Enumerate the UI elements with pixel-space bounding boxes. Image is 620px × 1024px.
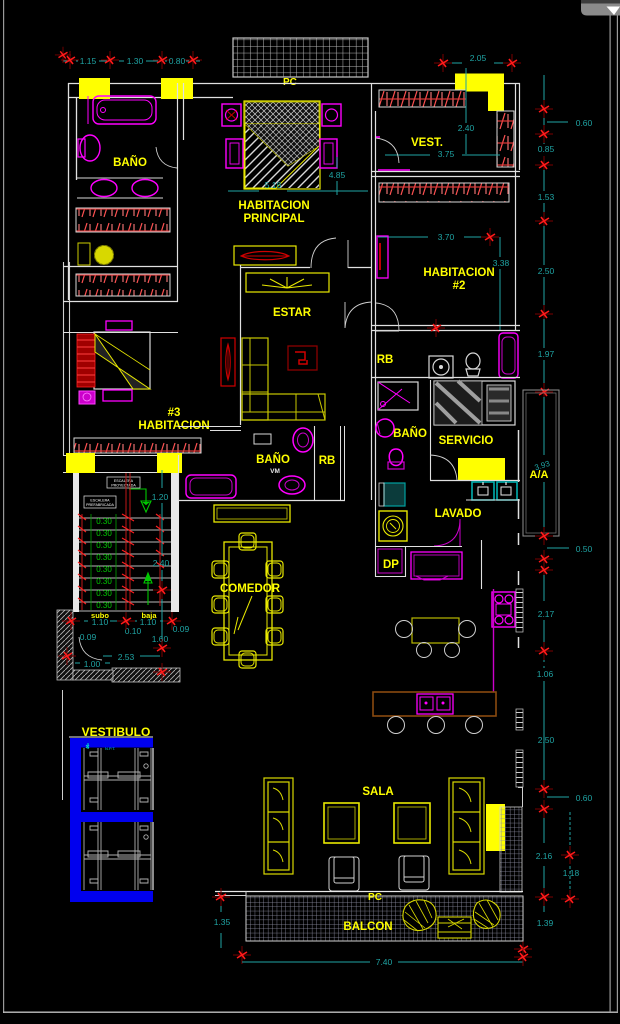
svg-text:RB: RB bbox=[377, 354, 394, 366]
svg-text:2.40: 2.40 bbox=[153, 558, 170, 568]
svg-text:2.40: 2.40 bbox=[458, 123, 475, 133]
svg-text:0.30: 0.30 bbox=[96, 601, 112, 610]
svg-text:1.35: 1.35 bbox=[214, 917, 231, 927]
svg-text:COMEDOR: COMEDOR bbox=[220, 583, 281, 595]
svg-text:LAVADO: LAVADO bbox=[435, 508, 482, 520]
svg-text:3.38: 3.38 bbox=[493, 258, 510, 268]
svg-text:RB: RB bbox=[319, 455, 336, 467]
svg-text:0.80: 0.80 bbox=[169, 56, 186, 66]
svg-text:1.60: 1.60 bbox=[152, 634, 169, 644]
svg-text:2.50: 2.50 bbox=[538, 735, 555, 745]
svg-text:0.09: 0.09 bbox=[80, 632, 97, 642]
svg-text:PREFABRICADA: PREFABRICADA bbox=[86, 503, 114, 507]
svg-text:0.50: 0.50 bbox=[576, 544, 593, 554]
svg-text:ESTAR: ESTAR bbox=[273, 307, 312, 319]
svg-text:0.10: 0.10 bbox=[125, 626, 142, 636]
svg-text:BAÑO: BAÑO bbox=[256, 453, 290, 466]
svg-text:2.53: 2.53 bbox=[118, 652, 135, 662]
svg-text:1.10: 1.10 bbox=[92, 617, 109, 627]
svg-text:1.10: 1.10 bbox=[140, 617, 157, 627]
svg-text:PC: PC bbox=[368, 892, 382, 903]
svg-text:5.18: 5.18 bbox=[265, 180, 282, 190]
svg-text:#3: #3 bbox=[168, 407, 181, 419]
svg-text:0.30: 0.30 bbox=[96, 589, 112, 598]
svg-text:BAÑO: BAÑO bbox=[393, 427, 427, 440]
svg-text:1.18: 1.18 bbox=[563, 868, 580, 878]
svg-text:1.06: 1.06 bbox=[537, 669, 554, 679]
svg-text:ESCALERA: ESCALERA bbox=[90, 499, 110, 503]
svg-text:BAÑO: BAÑO bbox=[113, 156, 147, 169]
svg-text:SERVICIO: SERVICIO bbox=[439, 435, 494, 447]
svg-text:0.30: 0.30 bbox=[96, 541, 112, 550]
svg-text:2.17: 2.17 bbox=[538, 609, 555, 619]
svg-text:PROYECTADA: PROYECTADA bbox=[111, 484, 136, 488]
svg-text:1.97: 1.97 bbox=[538, 349, 555, 359]
svg-text:2.16: 2.16 bbox=[536, 851, 553, 861]
svg-text:PC: PC bbox=[283, 77, 297, 88]
svg-text:0.85: 0.85 bbox=[538, 144, 555, 154]
svg-text:#2: #2 bbox=[453, 280, 466, 292]
svg-text:0.09: 0.09 bbox=[173, 624, 190, 634]
svg-text:0.30: 0.30 bbox=[96, 577, 112, 586]
svg-text:0.30: 0.30 bbox=[96, 553, 112, 562]
svg-text:1.00: 1.00 bbox=[84, 659, 101, 669]
svg-text:1.20: 1.20 bbox=[152, 492, 169, 502]
svg-text:HABITACION: HABITACION bbox=[238, 200, 309, 212]
svg-text:SALA: SALA bbox=[362, 786, 393, 798]
svg-text:0.30: 0.30 bbox=[96, 529, 112, 538]
svg-text:1.39: 1.39 bbox=[537, 918, 554, 928]
svg-text:1.53: 1.53 bbox=[538, 192, 555, 202]
svg-text:VEST.: VEST. bbox=[411, 137, 443, 149]
svg-text:VM: VM bbox=[270, 468, 280, 475]
svg-text:0.30: 0.30 bbox=[96, 565, 112, 574]
svg-text:2.50: 2.50 bbox=[538, 266, 555, 276]
svg-text:0.30: 0.30 bbox=[96, 517, 112, 526]
svg-text:HABITACION: HABITACION bbox=[423, 267, 494, 279]
svg-text:3.75: 3.75 bbox=[438, 149, 455, 159]
svg-text:4.85: 4.85 bbox=[329, 170, 346, 180]
svg-text:0.60: 0.60 bbox=[576, 793, 593, 803]
svg-text:N.P.T.: N.P.T. bbox=[105, 746, 115, 751]
svg-text:0.60: 0.60 bbox=[576, 118, 593, 128]
svg-text:3.70: 3.70 bbox=[438, 232, 455, 242]
svg-text:1.15: 1.15 bbox=[80, 56, 97, 66]
svg-text:BALCON: BALCON bbox=[343, 921, 392, 933]
svg-text:A/A: A/A bbox=[530, 469, 549, 481]
svg-text:DP: DP bbox=[383, 559, 399, 571]
svg-text:7.40: 7.40 bbox=[376, 957, 393, 967]
svg-text:PRINCIPAL: PRINCIPAL bbox=[243, 213, 304, 225]
svg-text:1.30: 1.30 bbox=[127, 56, 144, 66]
svg-text:ESCALERA: ESCALERA bbox=[114, 479, 134, 483]
svg-text:2.05: 2.05 bbox=[470, 53, 487, 63]
